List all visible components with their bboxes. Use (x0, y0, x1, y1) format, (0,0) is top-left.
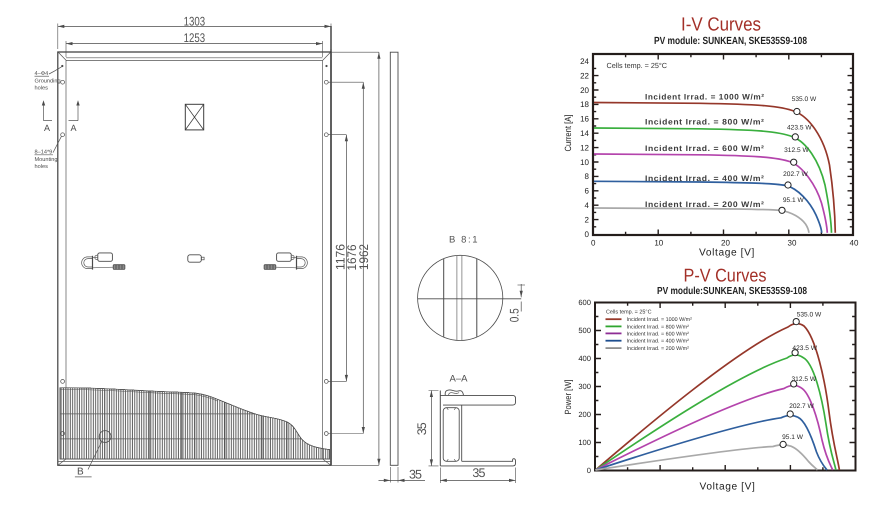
svg-text:A–A: A–A (450, 374, 469, 385)
svg-text:P-V Curves: P-V Curves (684, 265, 767, 286)
svg-text:14: 14 (580, 129, 589, 138)
svg-text:2: 2 (585, 215, 590, 224)
svg-text:20: 20 (721, 239, 730, 248)
svg-text:Incident Irrad. = 600 W/m²: Incident Irrad. = 600 W/m² (645, 144, 765, 153)
svg-text:35: 35 (409, 467, 422, 481)
svg-text:202.7 W: 202.7 W (789, 403, 814, 410)
svg-text:Mounting: Mounting (35, 156, 58, 163)
svg-text:500: 500 (578, 326, 591, 335)
svg-text:Incident Irrad. = 800 W/m²: Incident Irrad. = 800 W/m² (627, 324, 690, 330)
svg-text:40: 40 (850, 239, 859, 248)
svg-text:Grounding: Grounding (35, 78, 61, 85)
svg-text:423.5 W: 423.5 W (787, 125, 812, 132)
svg-text:10: 10 (580, 158, 589, 167)
svg-text:0: 0 (587, 466, 591, 475)
svg-text:B 8:1: B 8:1 (449, 235, 478, 246)
svg-text:Cells temp. = 25°C: Cells temp. = 25°C (607, 61, 668, 70)
svg-text:I-V Curves: I-V Curves (681, 15, 761, 36)
svg-text:30: 30 (788, 239, 797, 248)
svg-text:Incident Irrad. = 800 W/m²: Incident Irrad. = 800 W/m² (645, 118, 765, 127)
svg-text:20: 20 (580, 86, 589, 95)
svg-text:A: A (71, 123, 77, 133)
svg-text:10: 10 (654, 239, 663, 248)
svg-text:12: 12 (580, 143, 589, 152)
svg-text:95.1 W: 95.1 W (783, 197, 805, 204)
svg-text:A: A (44, 123, 50, 133)
svg-text:400: 400 (578, 354, 591, 363)
svg-text:35: 35 (415, 422, 429, 435)
svg-text:24: 24 (580, 57, 589, 66)
svg-text:Incident Irrad. = 400 W/m²: Incident Irrad. = 400 W/m² (645, 174, 765, 183)
svg-text:202.7 W: 202.7 W (783, 171, 808, 178)
svg-text:Incident Irrad. = 200 W/m²: Incident Irrad. = 200 W/m² (627, 346, 690, 352)
svg-text:1962: 1962 (357, 244, 371, 270)
svg-text:8: 8 (585, 172, 590, 181)
svg-text:PV module: SUNKEAN, SKE535S9-1: PV module: SUNKEAN, SKE535S9-108 (654, 36, 807, 47)
svg-text:312.5 W: 312.5 W (784, 147, 809, 154)
svg-text:600: 600 (578, 298, 591, 307)
svg-text:PV module:SUNKEAN, SKE535S9-10: PV module:SUNKEAN, SKE535S9-108 (657, 286, 807, 297)
svg-text:holes: holes (35, 163, 49, 170)
svg-text:1253: 1253 (184, 31, 206, 45)
svg-text:Incident Irrad. = 600 W/m²: Incident Irrad. = 600 W/m² (627, 331, 690, 337)
svg-text:1303: 1303 (184, 14, 206, 28)
svg-text:0: 0 (585, 230, 590, 239)
svg-text:16: 16 (580, 115, 589, 124)
svg-text:B: B (77, 467, 84, 478)
svg-text:0.5: 0.5 (508, 308, 522, 322)
svg-text:6: 6 (585, 187, 590, 196)
svg-text:Cells temp. = 25°C: Cells temp. = 25°C (606, 309, 652, 316)
svg-text:0: 0 (591, 239, 596, 248)
svg-text:4: 4 (585, 201, 590, 210)
svg-text:535.0 W: 535.0 W (797, 312, 822, 319)
svg-text:Incident Irrad. = 1000 W/m²: Incident Irrad. = 1000 W/m² (645, 92, 765, 101)
svg-text:35: 35 (472, 466, 485, 480)
svg-text:18: 18 (580, 100, 589, 109)
svg-text:Voltage [V]: Voltage [V] (700, 482, 756, 493)
svg-text:200: 200 (578, 410, 591, 419)
svg-text:535.0 W: 535.0 W (792, 96, 817, 103)
svg-text:22: 22 (580, 71, 589, 80)
svg-text:Current [A]: Current [A] (563, 115, 573, 152)
svg-text:300: 300 (578, 382, 591, 391)
svg-text:Incident Irrad. = 400 W/m²: Incident Irrad. = 400 W/m² (627, 339, 690, 345)
svg-text:100: 100 (578, 438, 591, 447)
svg-text:Incident Irrad. = 1000 W/m²: Incident Irrad. = 1000 W/m² (627, 317, 693, 323)
svg-text:95.1 W: 95.1 W (782, 434, 804, 441)
svg-text:Voltage [V]: Voltage [V] (699, 248, 755, 259)
svg-text:Incident Irrad. = 200 W/m²: Incident Irrad. = 200 W/m² (645, 200, 765, 209)
svg-text:holes: holes (35, 85, 49, 92)
svg-text:Power [W]: Power [W] (563, 380, 573, 415)
